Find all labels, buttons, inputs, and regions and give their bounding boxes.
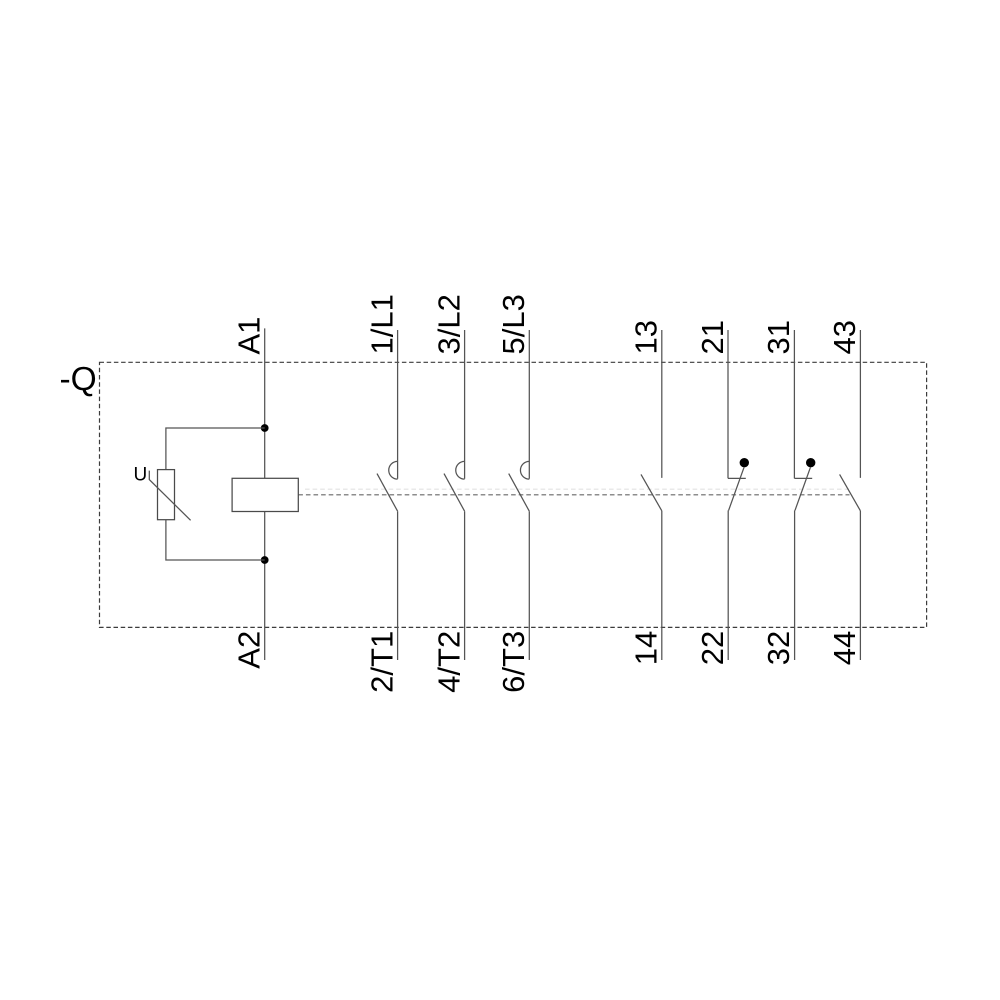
svg-text:3/L2: 3/L2 [431, 294, 466, 354]
svg-text:5/L3: 5/L3 [496, 294, 531, 354]
svg-text:44: 44 [827, 631, 862, 665]
svg-text:14: 14 [629, 631, 664, 665]
svg-text:4/T2: 4/T2 [431, 631, 466, 693]
svg-text:21: 21 [695, 320, 730, 354]
svg-text:U: U [134, 465, 148, 486]
svg-text:22: 22 [695, 631, 730, 665]
svg-text:32: 32 [761, 631, 796, 665]
svg-text:6/T3: 6/T3 [496, 631, 531, 693]
svg-text:1/L1: 1/L1 [364, 294, 399, 354]
svg-text:A2: A2 [232, 631, 267, 669]
svg-text:-Q: -Q [60, 361, 97, 398]
svg-text:31: 31 [761, 320, 796, 354]
svg-text:2/T1: 2/T1 [364, 631, 399, 693]
svg-text:43: 43 [827, 320, 862, 354]
svg-text:13: 13 [629, 320, 664, 354]
svg-text:A1: A1 [232, 317, 267, 355]
